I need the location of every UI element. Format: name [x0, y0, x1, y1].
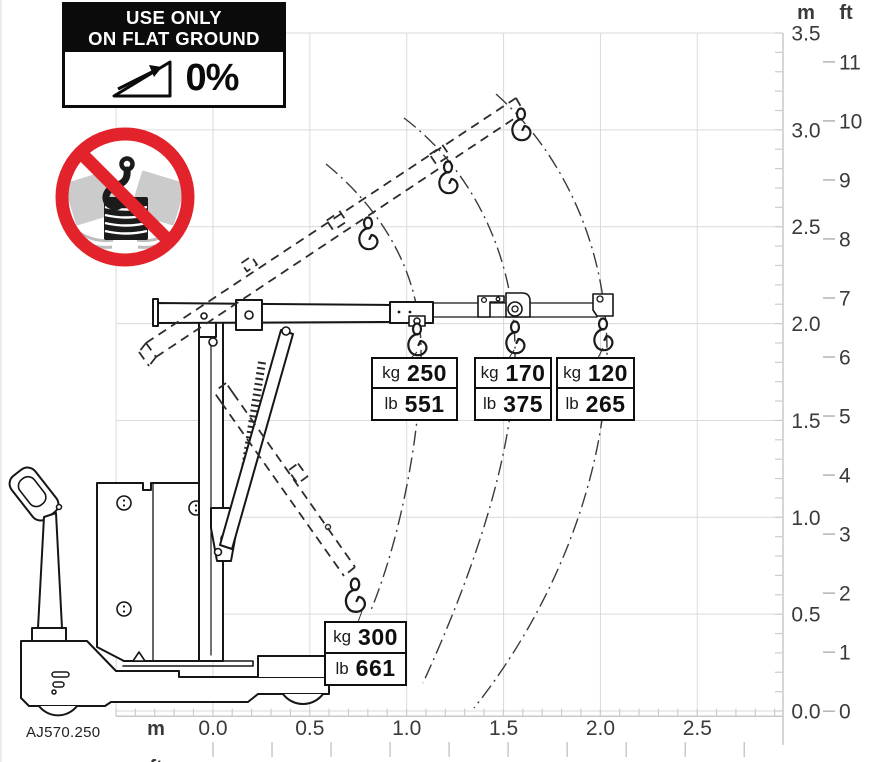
boom-horizontal — [158, 303, 390, 323]
right-axis-m-tick-label: 0.5 — [791, 604, 820, 627]
warning-line-1: USE ONLY — [65, 7, 283, 28]
value-lb: 265 — [586, 391, 626, 418]
unit-lb: lb — [335, 659, 348, 679]
right-axis-ft-tick-label: 4 — [839, 465, 851, 488]
crane-load-diagram: mft3.53.02.52.01.51.00.50.01110987654321… — [0, 0, 872, 762]
unit-lb: lb — [565, 394, 578, 414]
right-axis-ft-tick-label: 0 — [839, 701, 851, 724]
value-kg: 120 — [588, 360, 628, 387]
right-axis-ft-header: ft — [839, 2, 853, 24]
value-lb: 661 — [356, 655, 396, 682]
warning-sign-title: USE ONLY ON FLAT GROUND — [65, 5, 283, 52]
value-kg: 300 — [358, 624, 398, 651]
unit-kg: kg — [481, 363, 499, 383]
bottom-axis-m-tick-label: 0.5 — [295, 717, 324, 740]
no-swinging-load-prohibition-icon — [62, 134, 188, 260]
front-wheel — [39, 706, 77, 715]
bottom-axis-m-header: m — [147, 718, 165, 740]
value-lb: 551 — [405, 391, 445, 418]
warning-line-2: ON FLAT GROUND — [65, 28, 283, 49]
right-axis-m-header: m — [797, 2, 815, 24]
right-axis-m-tick-label: 1.5 — [791, 410, 820, 433]
right-axis-ft-tick-label: 5 — [839, 406, 851, 429]
right-axis-m-tick-label: 1.0 — [791, 507, 820, 530]
right-axis-m-tick-label: 0.0 — [791, 701, 820, 724]
bottom-axis-m-tick-label: 1.0 — [392, 717, 421, 740]
capacity-label-1000mm: kg250 lb551 — [371, 357, 458, 421]
right-axis-ft-tick-label: 6 — [839, 347, 851, 370]
hook-icon — [346, 579, 365, 612]
unit-kg: kg — [333, 627, 351, 647]
capacity-label-2000mm: kg120 lb265 — [556, 357, 635, 421]
bottom-axis-m-tick-label: 1.5 — [489, 717, 518, 740]
chassis-plate — [97, 483, 201, 661]
right-axis-ft-tick-label: 1 — [839, 642, 851, 665]
right-axis-ft-tick-label: 9 — [839, 169, 851, 192]
hydraulic-cylinder — [220, 330, 293, 549]
slope-percentage: 0% — [186, 57, 239, 100]
hook-icon — [439, 162, 457, 194]
rear-wheel — [283, 694, 323, 704]
bottom-axis-m-tick-label: 0.0 — [198, 717, 227, 740]
bottom-axis-m-tick-label: 2.0 — [586, 717, 615, 740]
unit-kg: kg — [382, 363, 400, 383]
right-axis-ft-tick-label: 10 — [839, 110, 862, 133]
right-axis-m-tick-label: 3.5 — [791, 23, 820, 46]
unit-kg: kg — [563, 363, 581, 383]
slope-gradient-icon — [110, 56, 174, 100]
boom-raised-dashed — [139, 98, 524, 366]
right-axis-ft-tick-label: 8 — [839, 228, 851, 251]
value-kg: 250 — [407, 360, 447, 387]
right-axis-m-tick-label: 2.0 — [791, 313, 820, 336]
right-axis-m-tick-label: 2.5 — [791, 216, 820, 239]
bottom-axis-ft-header: ft — [149, 757, 163, 762]
bottom-axis-m-tick-label: 2.5 — [683, 717, 712, 740]
flat-ground-warning-sign: USE ONLY ON FLAT GROUND 0% — [62, 2, 286, 108]
right-axis-ft-tick-label: 3 — [839, 524, 851, 547]
unit-lb: lb — [384, 394, 397, 414]
hook-icon — [359, 218, 377, 250]
hook-icon — [408, 324, 426, 356]
capacity-label-folded: kg300 lb661 — [324, 621, 407, 686]
unit-lb: lb — [483, 394, 496, 414]
right-axis-ft-tick-label: 11 — [839, 51, 861, 74]
boom-lowered-dashed — [214, 383, 355, 576]
right-axis-ft-tick-label: 2 — [839, 583, 851, 606]
capacity-label-1500mm: kg170 lb375 — [474, 357, 552, 421]
tiller-shaft — [38, 513, 62, 628]
value-lb: 375 — [503, 391, 543, 418]
right-axis-m-tick-label: 3.0 — [791, 119, 820, 142]
right-axis-ft-tick-label: 7 — [839, 287, 851, 310]
value-kg: 170 — [506, 360, 546, 387]
figure-code: AJ570.250 — [26, 724, 100, 741]
